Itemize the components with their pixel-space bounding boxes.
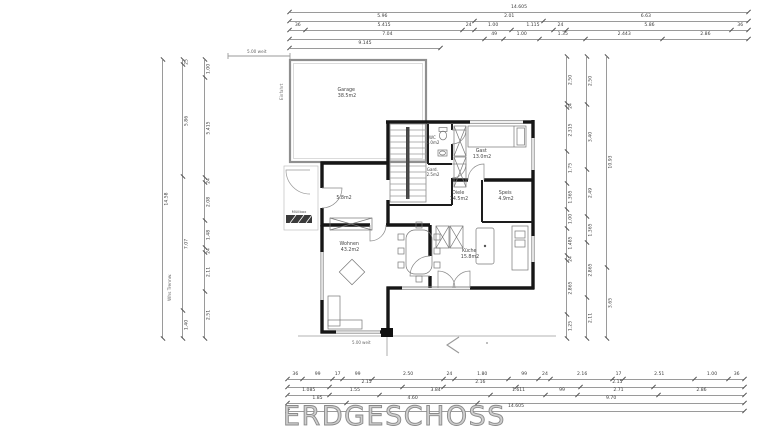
room-label-entry: 5.8m2 xyxy=(336,195,351,201)
room-label-kueche: Küche 15.8m2 xyxy=(461,248,479,260)
garage-outline xyxy=(290,60,426,162)
room-label-speis: Speis 4.9m2 xyxy=(498,190,513,202)
room-label-wc: WC 2.0m2 xyxy=(427,135,440,145)
room-label-gard: Gard. 2.5m2 xyxy=(427,167,440,177)
fence-label: 5.00 weit xyxy=(247,49,267,54)
room-label-garage: Garage 38.5m2 xyxy=(337,87,356,99)
north-arrow-icon xyxy=(447,337,488,353)
room-label-gast: Gast 13.0m2 xyxy=(473,148,491,160)
floor-plan-sheet: 14.605 5.962.016.63 365.415241.001.11524… xyxy=(0,0,768,432)
kitchen-counter xyxy=(512,226,528,270)
room-label-wohnen: Wohnen 43.2m2 xyxy=(340,241,361,253)
ramp-label: Einfahrt xyxy=(279,83,284,100)
terrace-label: 5.00 weit xyxy=(352,340,371,345)
sofa-group xyxy=(328,259,365,329)
entry-porch xyxy=(284,166,318,230)
dining-table xyxy=(398,222,440,282)
bin-label: Müllbox xyxy=(292,209,307,214)
guest-bed xyxy=(468,126,526,147)
floor-plan-drawing: 5.00 weit Einfahrt Müllbox xyxy=(0,0,768,432)
terrace-edge xyxy=(298,328,556,356)
sheet-title: ERDGESCHOSS xyxy=(283,403,506,430)
